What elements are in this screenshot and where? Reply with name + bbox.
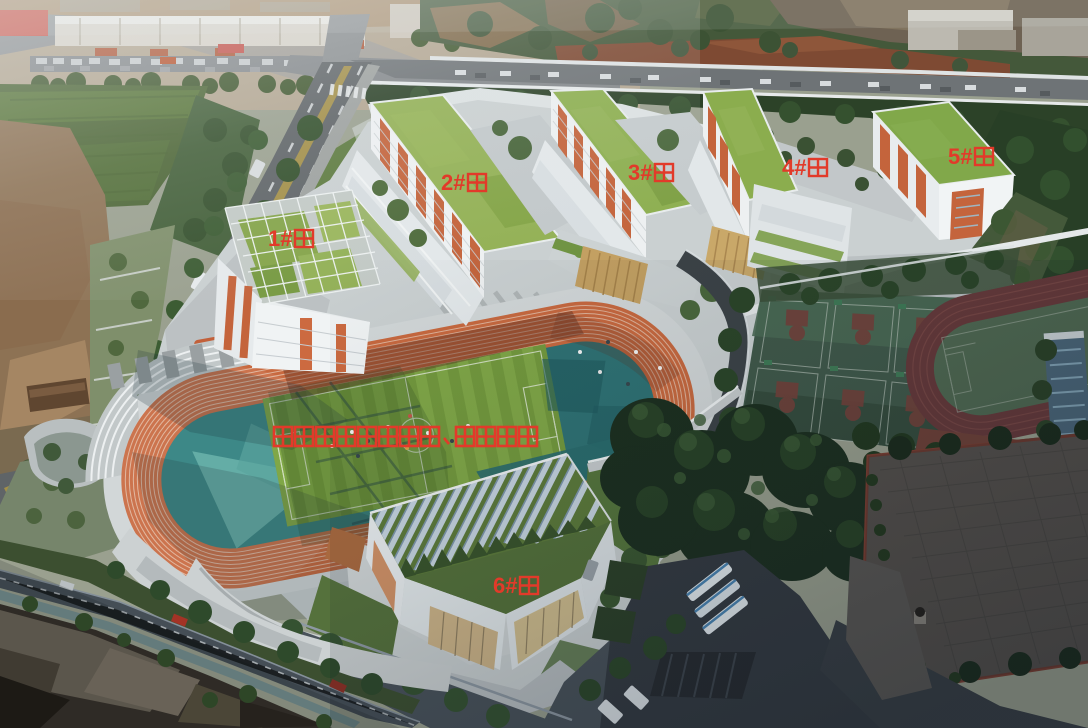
svg-text:4#: 4# [782,155,806,180]
svg-text:6#: 6# [493,573,517,598]
svg-text:3#: 3# [628,160,652,185]
svg-text:5#: 5# [948,144,972,169]
svg-text:1#: 1# [268,226,292,251]
svg-text:2#: 2# [441,170,465,195]
